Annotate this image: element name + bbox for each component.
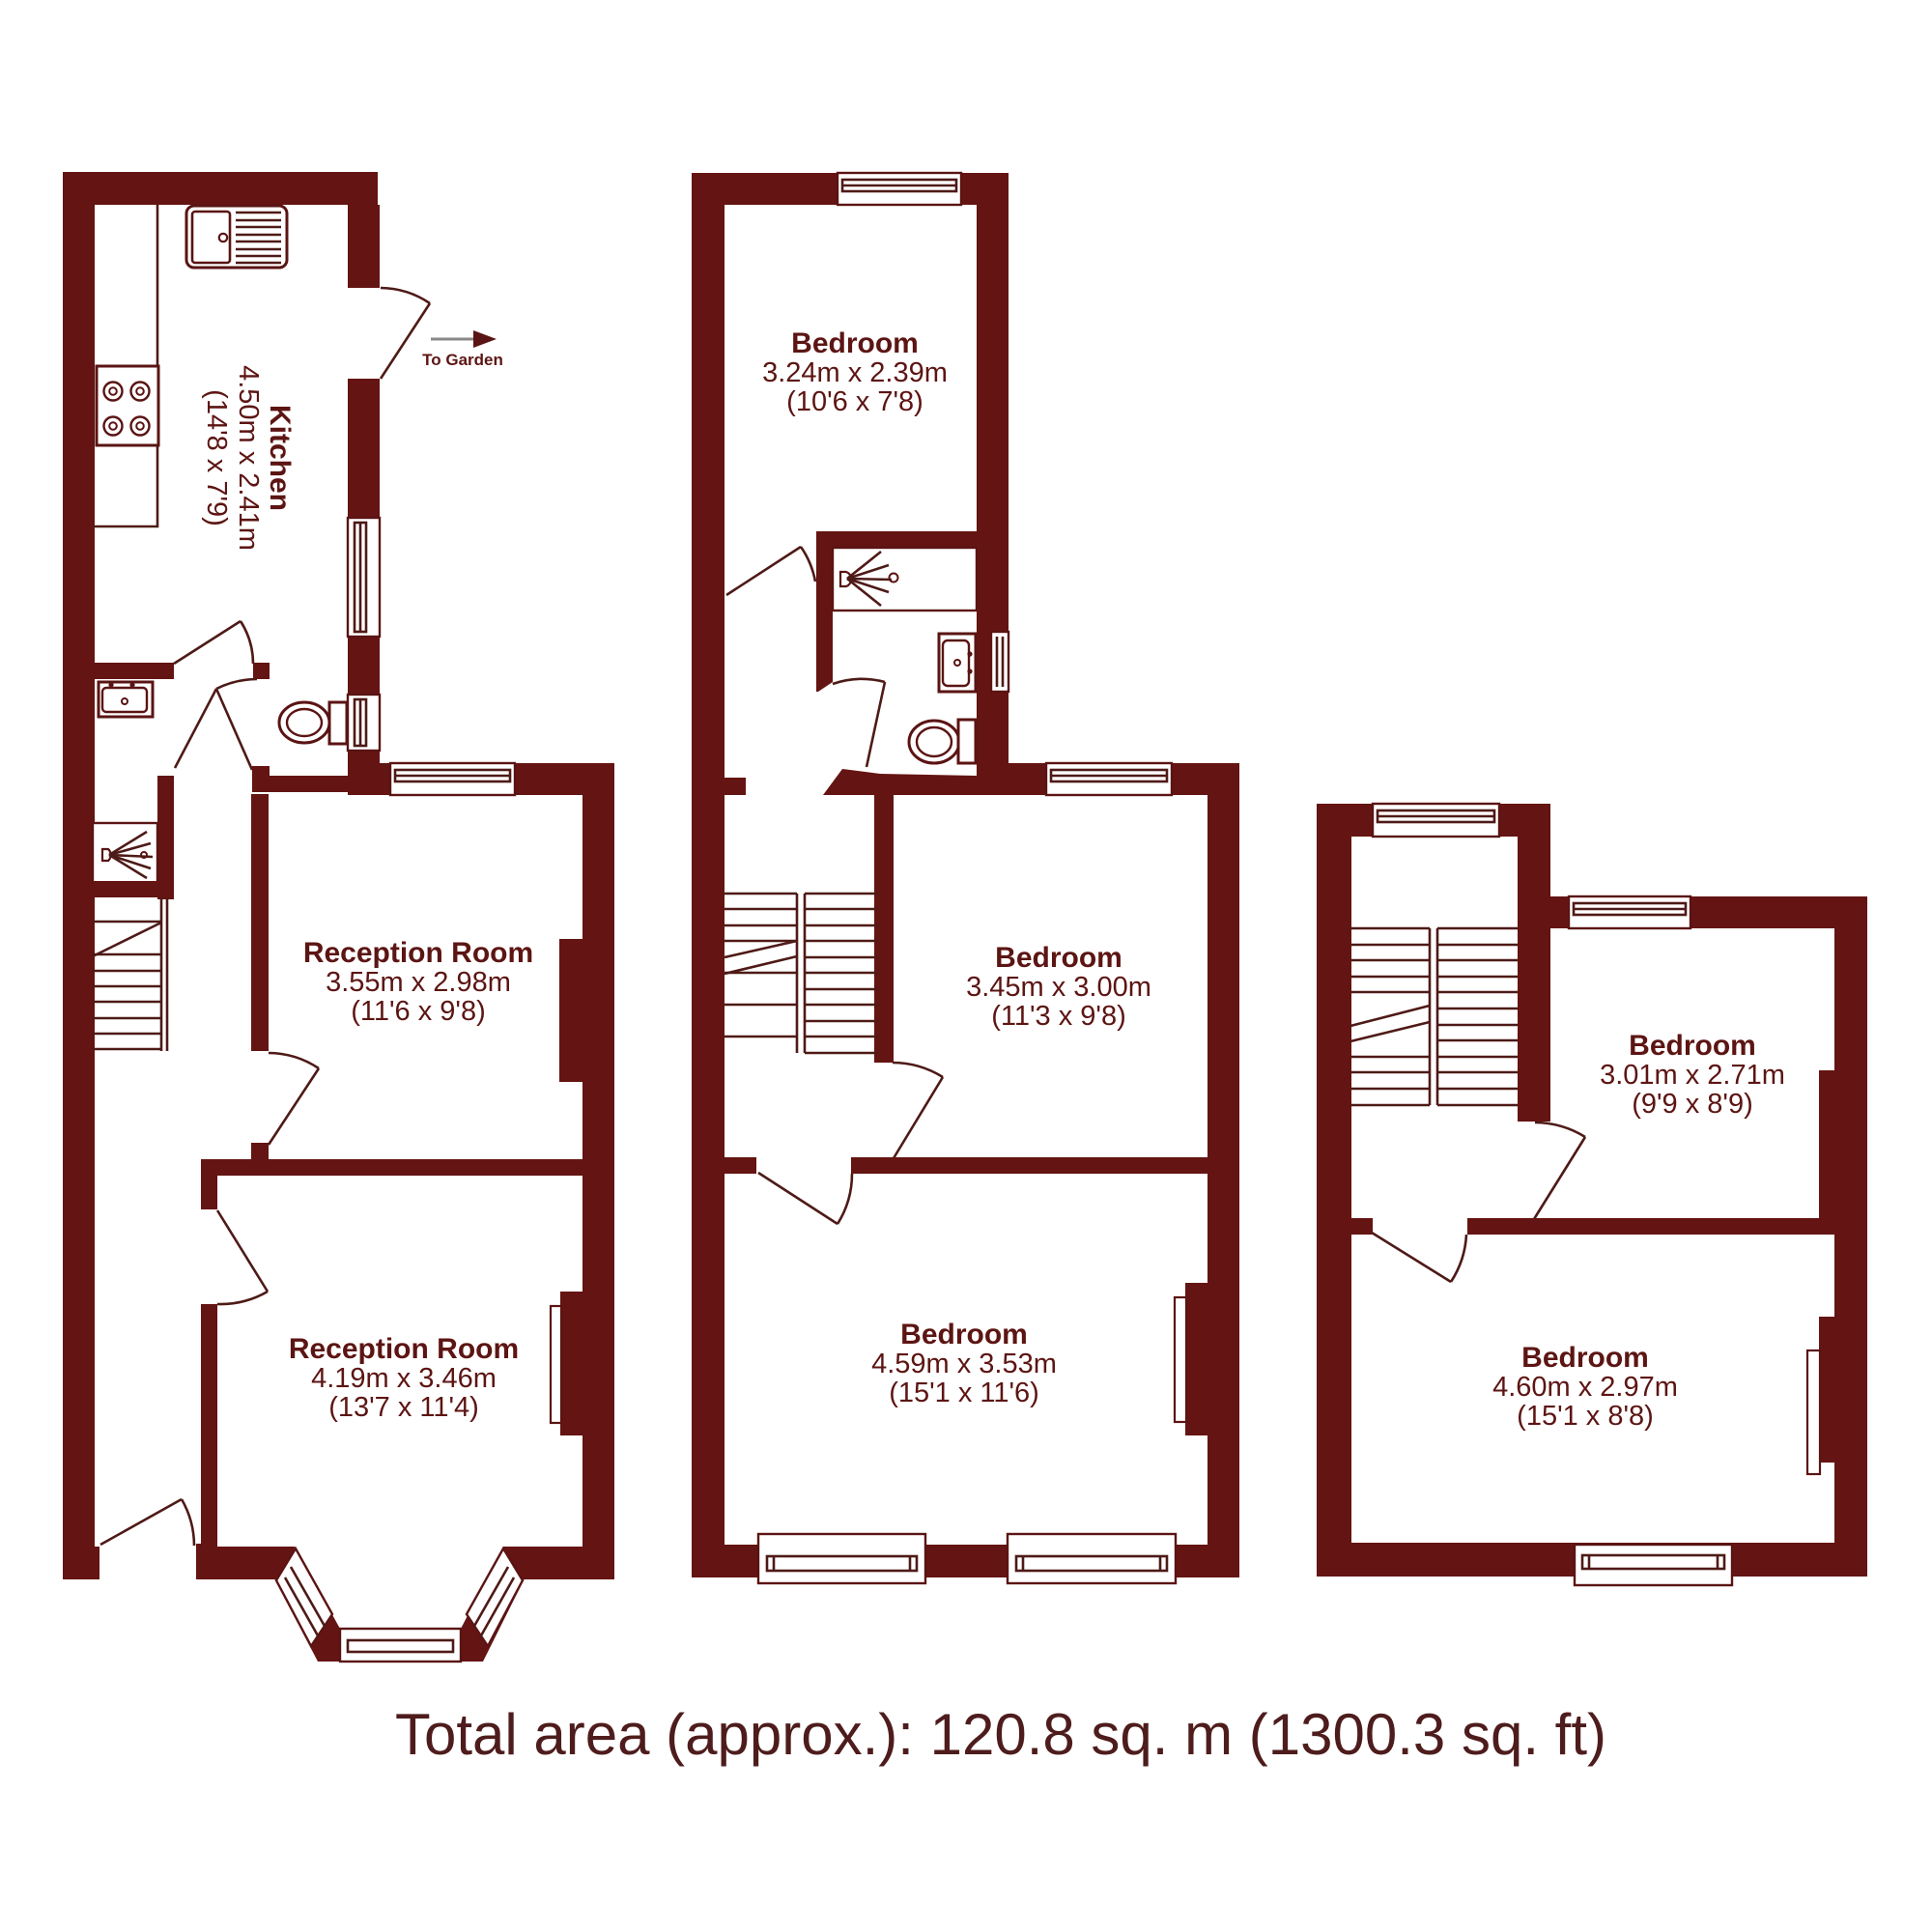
svg-text:(10'6 x 7'8): (10'6 x 7'8) — [786, 386, 923, 417]
svg-text:(14'8 x 7'9): (14'8 x 7'9) — [201, 389, 232, 526]
svg-text:4.60m x 2.97m: 4.60m x 2.97m — [1492, 1372, 1678, 1403]
svg-text:4.59m x 3.53m: 4.59m x 3.53m — [871, 1349, 1057, 1379]
svg-text:Bedroom: Bedroom — [1521, 1342, 1649, 1374]
svg-text:Bedroom: Bedroom — [1629, 1030, 1756, 1062]
svg-text:Bedroom: Bedroom — [995, 942, 1122, 974]
svg-text:(15'1 x 11'6): (15'1 x 11'6) — [889, 1378, 1039, 1408]
svg-text:Kitchen: Kitchen — [264, 405, 296, 511]
svg-text:4.19m x 3.46m: 4.19m x 3.46m — [311, 1363, 497, 1394]
svg-text:3.01m x 2.71m: 3.01m x 2.71m — [1600, 1060, 1785, 1091]
svg-text:(11'3 x 9'8): (11'3 x 9'8) — [991, 1001, 1126, 1032]
svg-text:Total area (approx.): 120.8 sq: Total area (approx.): 120.8 sq. m (1300.… — [395, 1702, 1606, 1767]
svg-text:(11'6 x 9'8): (11'6 x 9'8) — [351, 996, 486, 1027]
svg-text:Bedroom: Bedroom — [791, 327, 919, 359]
svg-text:3.24m x 2.39m: 3.24m x 2.39m — [762, 357, 948, 388]
svg-text:Bedroom: Bedroom — [900, 1319, 1028, 1350]
svg-text:3.55m x 2.98m: 3.55m x 2.98m — [326, 967, 511, 998]
svg-text:To Garden: To Garden — [422, 351, 503, 369]
svg-text:(15'1 x 8'8): (15'1 x 8'8) — [1517, 1401, 1654, 1432]
svg-text:(13'7 x 11'4): (13'7 x 11'4) — [328, 1392, 479, 1423]
svg-text:Reception Room: Reception Room — [289, 1333, 519, 1365]
svg-text:3.45m x 3.00m: 3.45m x 3.00m — [966, 972, 1151, 1003]
svg-text:Reception Room: Reception Room — [303, 937, 533, 969]
svg-text:4.50m x 2.41m: 4.50m x 2.41m — [233, 365, 264, 551]
svg-text:(9'9 x 8'9): (9'9 x 8'9) — [1632, 1089, 1753, 1120]
